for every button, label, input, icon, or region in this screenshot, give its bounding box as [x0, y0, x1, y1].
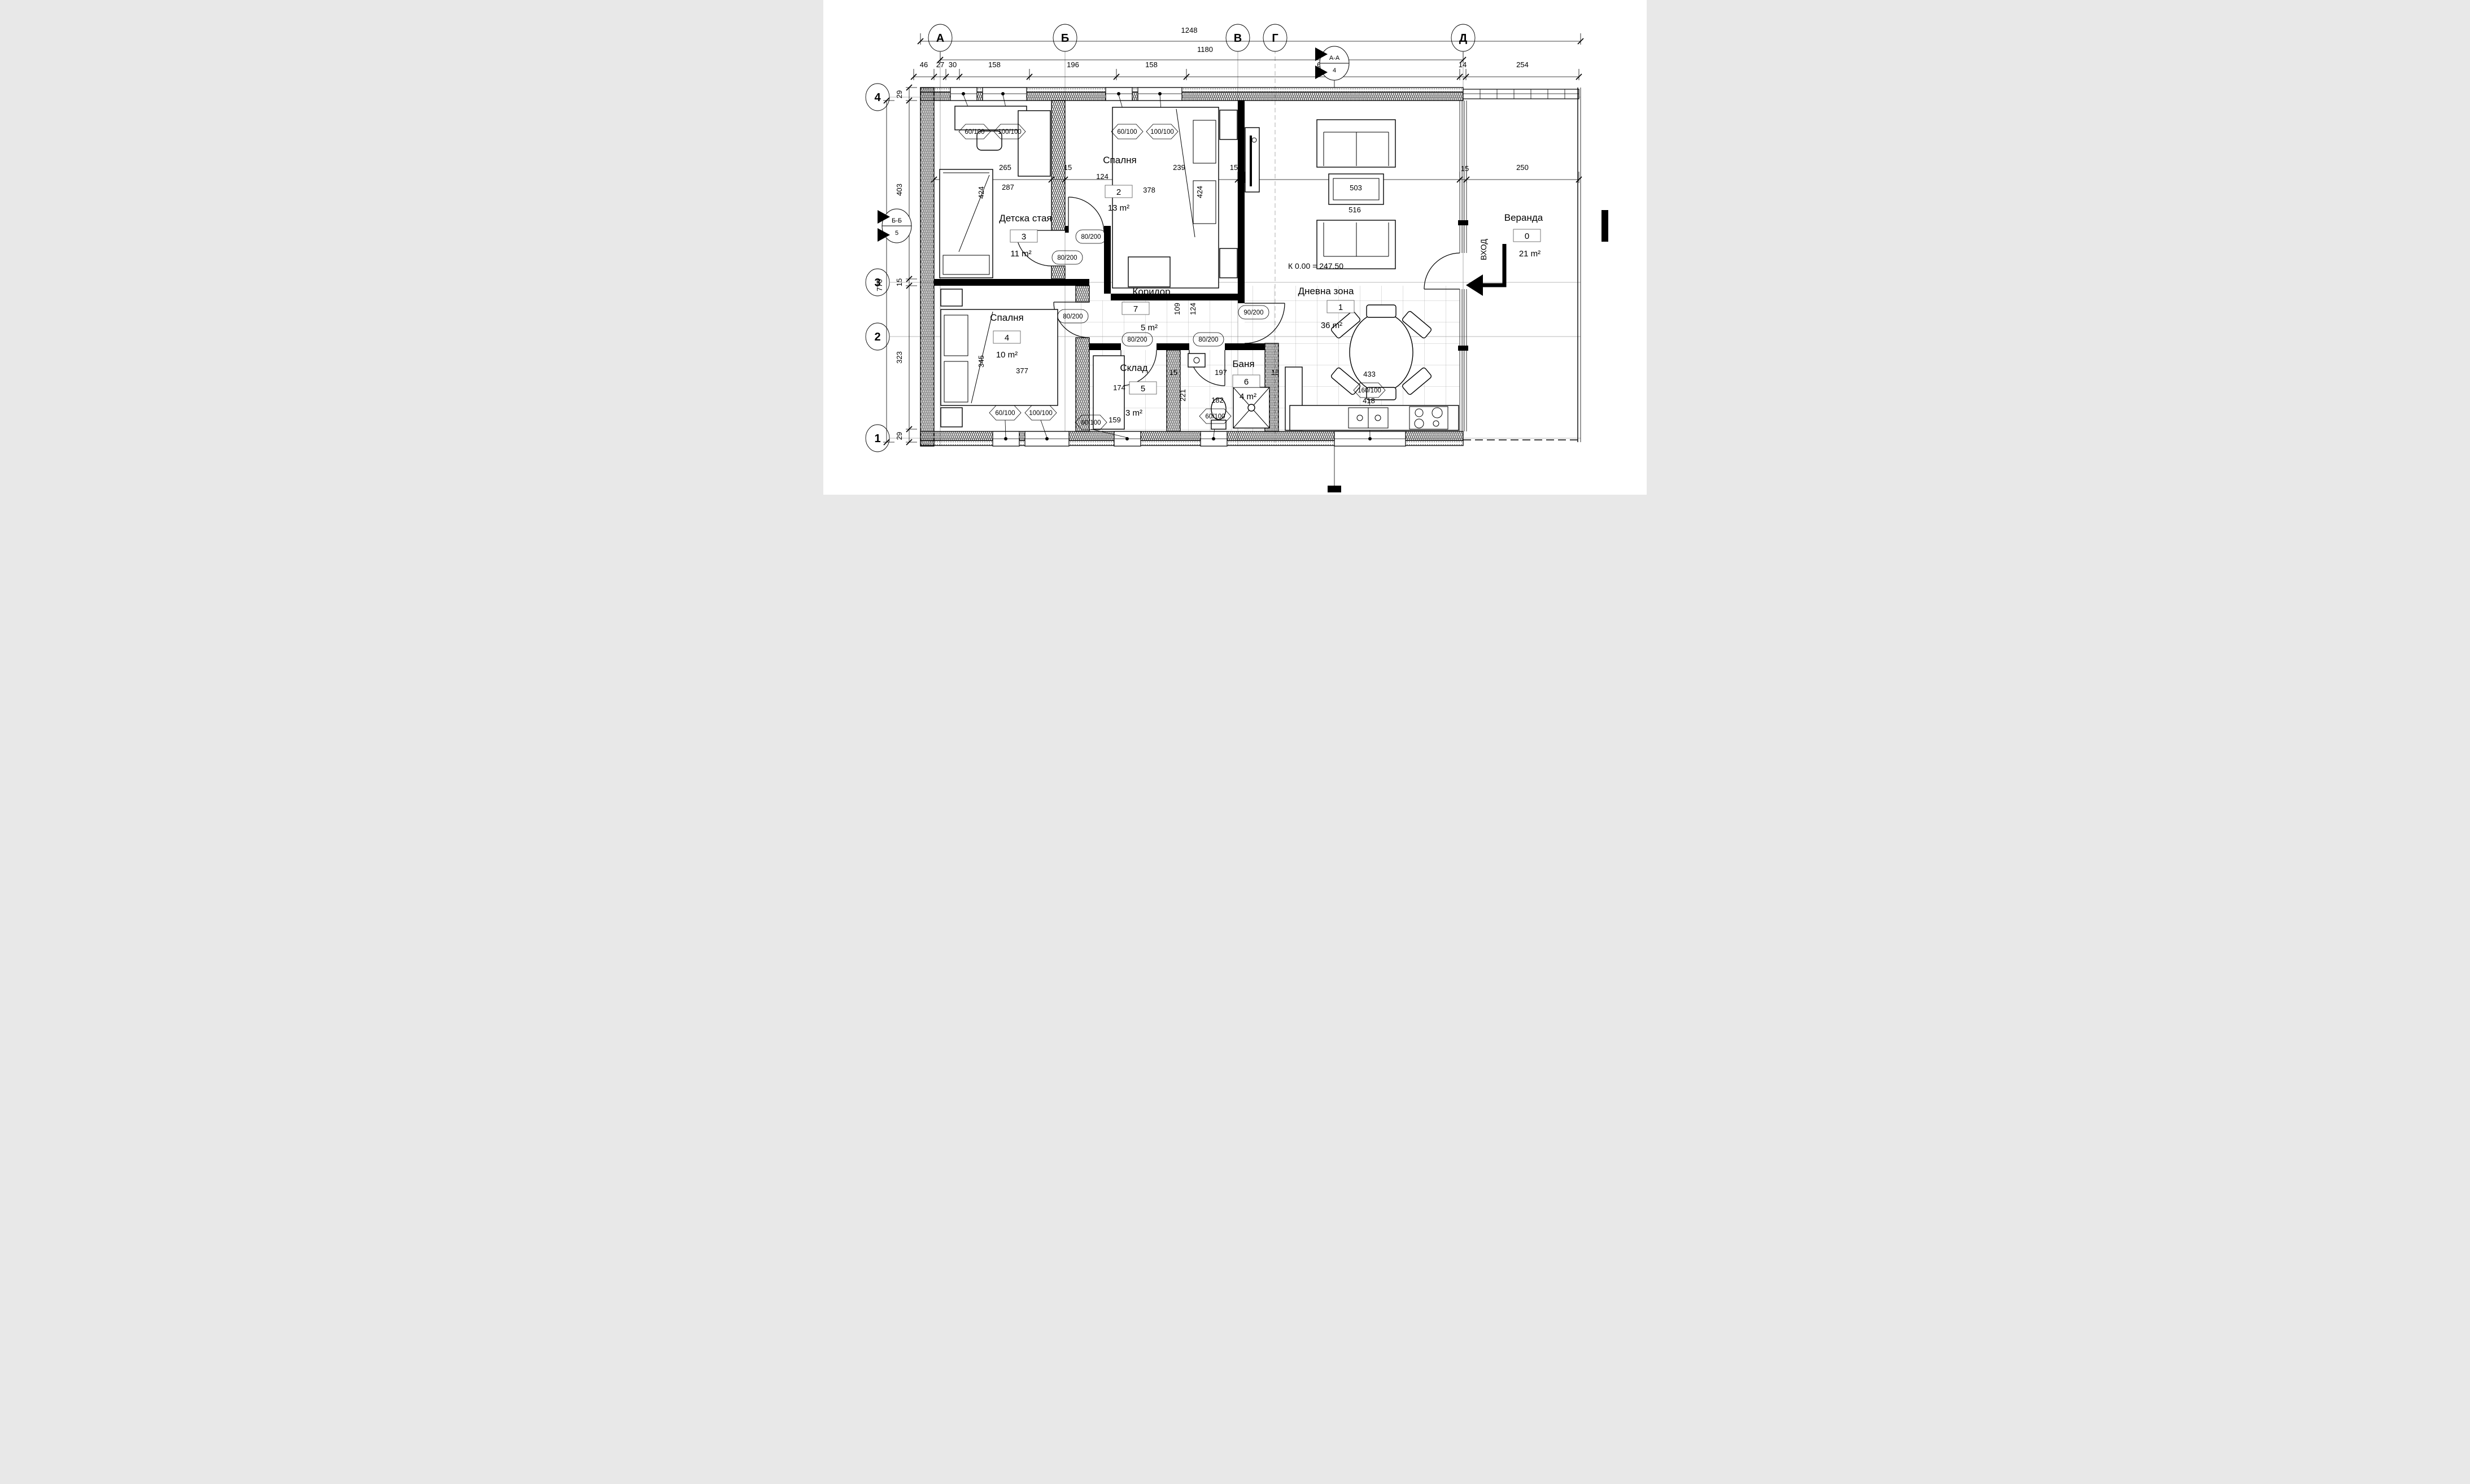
dim-chain	[937, 52, 1466, 63]
label: 15	[1230, 163, 1238, 172]
room-tag-7: 7	[1122, 302, 1149, 315]
door-tag: 80/200	[1076, 230, 1106, 243]
children-wardrobe	[1018, 111, 1050, 176]
label: 109	[1173, 303, 1181, 315]
label: 287	[1002, 183, 1014, 191]
label: 21 m²	[1519, 249, 1541, 259]
room-tag-0: 0	[1513, 229, 1541, 242]
svg-text:5: 5	[1141, 384, 1145, 394]
axis-label: 1	[874, 433, 880, 445]
section-marker-А-А: А-А4	[1315, 46, 1349, 80]
label: Спалня	[990, 312, 1023, 323]
glazing-mullion	[1458, 220, 1468, 225]
label: Склад	[1120, 363, 1147, 373]
axis-label: 2	[874, 331, 880, 343]
window-60x100-bedroom2	[1106, 88, 1132, 101]
label: 221	[1179, 389, 1187, 401]
dim-chain	[911, 69, 1582, 80]
label: Спалня	[1103, 155, 1136, 165]
section-BB-right-arrow	[1601, 210, 1608, 242]
svg-text:0: 0	[1525, 232, 1529, 241]
window-100x100-bedroom2	[1138, 88, 1182, 101]
wall-bedroom4-right-lower	[1076, 338, 1089, 431]
svg-text:80/200: 80/200	[1057, 255, 1077, 261]
window-60x100-storage	[1114, 431, 1141, 446]
svg-text:60/100: 60/100	[965, 129, 984, 136]
label: 11 m²	[1010, 249, 1031, 259]
veranda-top-glazing	[1463, 89, 1579, 99]
svg-text:60/100: 60/100	[1205, 413, 1225, 420]
svg-text:Б-Б: Б-Б	[892, 217, 902, 224]
label: 15	[1064, 163, 1072, 172]
tv-console	[1245, 128, 1259, 192]
svg-text:60/100: 60/100	[1117, 129, 1137, 136]
children-bed	[940, 169, 993, 278]
label: 4 m²	[1240, 392, 1256, 401]
wall-axis-V	[1238, 101, 1245, 303]
svg-text:80/200: 80/200	[1198, 337, 1218, 343]
label: 239	[1173, 163, 1185, 172]
label: 503	[1350, 184, 1362, 192]
label: 1180	[1197, 45, 1213, 54]
svg-text:4: 4	[1333, 67, 1336, 74]
label: 29	[895, 90, 904, 98]
label: 403	[895, 184, 904, 196]
room-tag-1: 1	[1327, 300, 1354, 313]
label: 345	[977, 355, 985, 368]
label: 254	[1516, 60, 1529, 69]
label: 124	[1189, 303, 1197, 315]
label: 174	[1113, 383, 1125, 392]
floor-plan-drawing: АБВГД4321	[823, 0, 1647, 495]
label: 197	[1215, 368, 1227, 377]
bath-sink	[1188, 353, 1205, 367]
label: 196	[1067, 60, 1079, 69]
svg-text:5: 5	[895, 230, 898, 237]
wall-children-bedroom4	[934, 279, 1089, 286]
label: 516	[1349, 206, 1361, 214]
axis-label: Д	[1459, 32, 1467, 45]
svg-text:3: 3	[1022, 232, 1026, 242]
label: 15	[895, 278, 904, 286]
veranda	[1463, 88, 1581, 442]
svg-text:80/200: 80/200	[1127, 337, 1147, 343]
bedroom2-nightstand	[1220, 110, 1237, 139]
label: 5 m²	[1141, 323, 1158, 333]
dim-chain	[918, 33, 1583, 45]
label: 30	[949, 60, 957, 69]
window-100x100-children	[983, 88, 1027, 101]
room-tag-3: 3	[1010, 230, 1037, 242]
label: 770	[875, 279, 884, 291]
label: К 0.00 = 247.50	[1288, 261, 1343, 270]
door-tag: 80/200	[1052, 251, 1083, 264]
label: 15	[1461, 164, 1469, 173]
dining-chair	[1367, 305, 1396, 317]
label: 424	[977, 186, 985, 199]
glazing-mullion	[1458, 346, 1468, 351]
wall-bedroom2-door-stub	[1104, 226, 1111, 233]
wall-children-bedroom2-upper	[1051, 101, 1065, 230]
svg-text:2: 2	[1116, 187, 1121, 197]
wall-bedroom2-bottom	[1111, 294, 1245, 300]
label: Коридор	[1132, 286, 1170, 297]
label: 13 m²	[1108, 203, 1129, 213]
label: 159	[1109, 416, 1121, 424]
svg-text:60/100: 60/100	[1081, 420, 1101, 426]
bedroom4-nightstand	[941, 408, 962, 427]
svg-text:80/200: 80/200	[1081, 234, 1101, 241]
section-AA-bottom-arrow	[1328, 486, 1341, 492]
wall-corridor-south-2	[1157, 343, 1189, 350]
section-marker-Б-Б: Б-Б5	[878, 209, 911, 243]
svg-text:80/200: 80/200	[1063, 313, 1083, 320]
svg-text:60/100: 60/100	[995, 410, 1015, 417]
svg-text:7: 7	[1133, 304, 1138, 314]
axis-label: Б	[1061, 32, 1069, 45]
left-wall	[920, 88, 934, 446]
axis-label: А	[936, 32, 944, 45]
svg-text:А-А: А-А	[1329, 55, 1340, 62]
label: Веранда	[1504, 212, 1543, 223]
bedroom2-nightstand	[1220, 248, 1237, 278]
label: 158	[1145, 60, 1158, 69]
wall-children-bedroom2-lower	[1051, 266, 1065, 279]
label: 3 m²	[1125, 408, 1142, 418]
label: 250	[1516, 163, 1529, 172]
label: 158	[988, 60, 1001, 69]
room-tag-5: 5	[1129, 382, 1157, 394]
wall-corridor-south-1	[1089, 343, 1121, 350]
window-60x100-bedroom4	[993, 431, 1019, 446]
window-tag: 60/100	[989, 405, 1021, 420]
label: 182	[1211, 396, 1224, 404]
dim-chain-vertical	[883, 98, 894, 445]
room-tag-6: 6	[1233, 375, 1260, 387]
label: 124	[1096, 172, 1109, 181]
label: 15	[1271, 368, 1279, 377]
label: 265	[999, 163, 1011, 172]
sofa-top	[1317, 120, 1395, 167]
dim-chain-vertical	[906, 85, 917, 445]
svg-text:4: 4	[1005, 333, 1009, 343]
label: 29	[895, 432, 904, 440]
entrance-door	[1424, 253, 1460, 289]
svg-text:1: 1	[1338, 303, 1343, 312]
label: 10 m²	[996, 350, 1018, 360]
axis-label: В	[1234, 32, 1242, 45]
label: 433	[1363, 370, 1376, 378]
axis-label: Г	[1272, 32, 1278, 45]
label: Баня	[1232, 359, 1254, 369]
svg-text:100/100: 100/100	[998, 129, 1022, 136]
label: 27	[936, 60, 944, 69]
svg-text:90/200: 90/200	[1243, 309, 1263, 316]
wall-nook-east	[1104, 233, 1111, 294]
svg-text:6: 6	[1244, 377, 1249, 387]
label: 378	[1143, 186, 1155, 194]
label: 377	[1016, 366, 1028, 375]
door-bedroom2	[1068, 197, 1104, 233]
label: Дневна зона	[1298, 286, 1354, 296]
svg-text:100/100: 100/100	[1029, 410, 1053, 417]
wall-bedroom4-right-upper	[1076, 286, 1089, 302]
window-tag: 100/100	[1025, 405, 1057, 420]
label: 1248	[1181, 26, 1198, 34]
label: 14	[1459, 60, 1467, 69]
children-desk	[955, 106, 1027, 150]
label: 424	[1195, 186, 1204, 198]
label: 323	[895, 351, 904, 364]
bedroom2-dresser	[1128, 257, 1170, 287]
label: Детска стая	[999, 213, 1051, 224]
room-tag-2: 2	[1105, 185, 1132, 198]
axis-label: 4	[874, 91, 881, 104]
svg-text:100/100: 100/100	[1150, 129, 1174, 136]
window-100x100-bedroom4	[1025, 431, 1069, 446]
floor-plan-sheet: АБВГД4321	[823, 0, 1647, 495]
svg-text:160/100: 160/100	[1358, 387, 1381, 394]
window-60x100-children	[950, 88, 977, 101]
label: ВХОД	[1479, 239, 1488, 260]
label: 36 m²	[1321, 321, 1342, 330]
label: 46	[920, 60, 928, 69]
wall-bedroom2-door-stub	[1065, 226, 1068, 233]
wall-corridor-south-3	[1225, 343, 1265, 350]
label: 15	[1169, 368, 1177, 377]
bedroom4-nightstand	[941, 289, 962, 306]
room-tag-4: 4	[993, 331, 1020, 343]
